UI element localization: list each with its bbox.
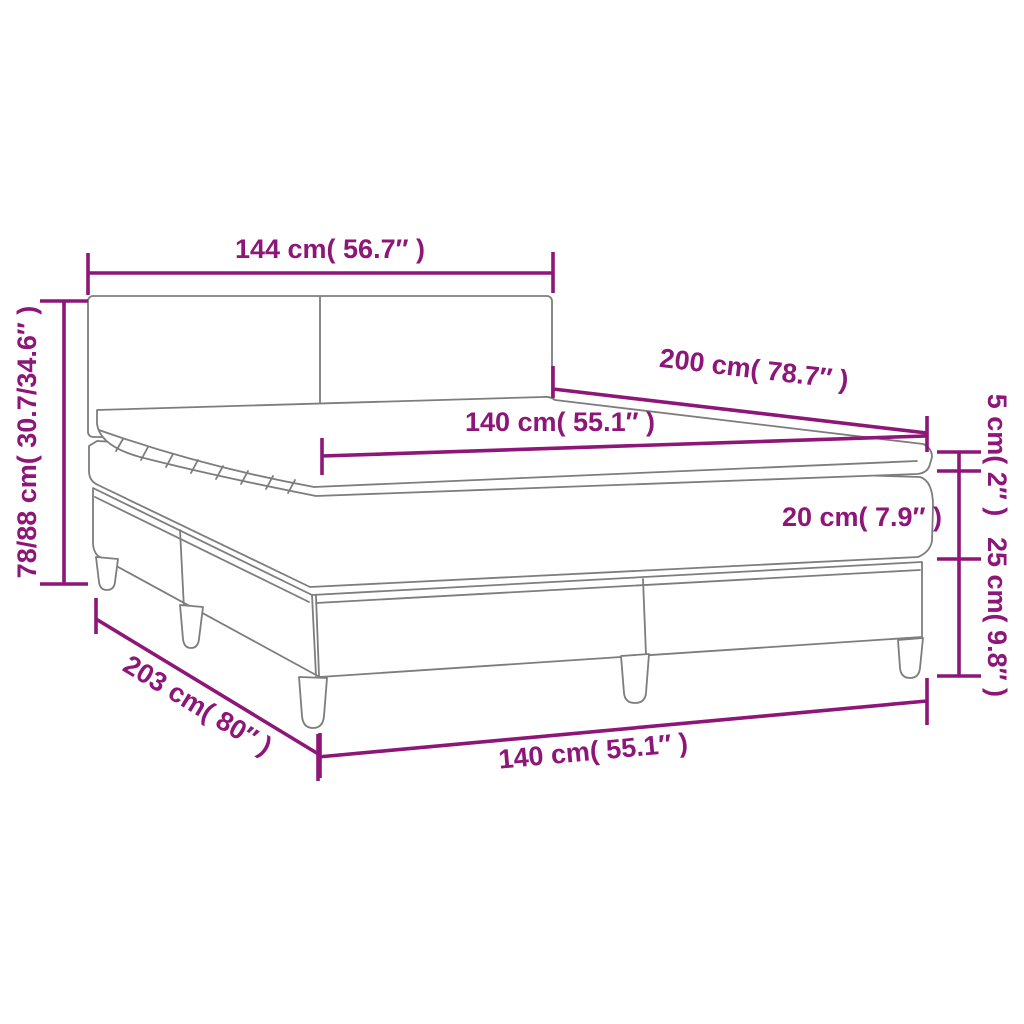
dim-total-height-lines <box>40 301 88 584</box>
dim-base-height-label: 25 cm( 9.8″ ) <box>982 537 1012 697</box>
bed-leg <box>299 677 327 728</box>
dim-mattress-width-bottom: 140 cm( 55.1″ ) <box>318 678 927 781</box>
bed-leg <box>180 605 203 648</box>
dim-bed-length-label: 200 cm( 78.7″ ) <box>658 343 850 395</box>
bed-leg <box>898 638 923 678</box>
bed-dimension-diagram: 144 cm( 56.7″ ) 78/88 cm( 30.7/34.6″ ) 2… <box>0 0 1024 1024</box>
dim-total-height: 78/88 cm( 30.7/34.6″ ) <box>12 301 88 584</box>
dim-mattress-width-top-label: 140 cm( 55.1″ ) <box>465 407 655 437</box>
dim-mattress-width-bottom-label: 140 cm( 55.1″ ) <box>497 727 689 774</box>
dim-total-height-label: 78/88 cm( 30.7/34.6″ ) <box>12 306 42 579</box>
dim-headboard-width-label: 144 cm( 56.7″ ) <box>235 234 425 264</box>
dim-base-length-label: 203 cm( 80″ ) <box>118 649 277 761</box>
dim-mattress-height-label: 20 cm( 7.9″ ) <box>782 502 942 532</box>
dim-headboard-width: 144 cm( 56.7″ ) <box>88 234 553 295</box>
dim-height-stack-lines <box>937 452 981 676</box>
bed-leg <box>621 654 649 703</box>
dim-mattress-width-bottom-lines <box>318 678 927 781</box>
diagram-canvas: 144 cm( 56.7″ ) 78/88 cm( 30.7/34.6″ ) 2… <box>0 0 1024 1024</box>
dim-topper-height-label: 5 cm( 2″ ) <box>982 394 1012 516</box>
bed-leg <box>96 557 118 590</box>
